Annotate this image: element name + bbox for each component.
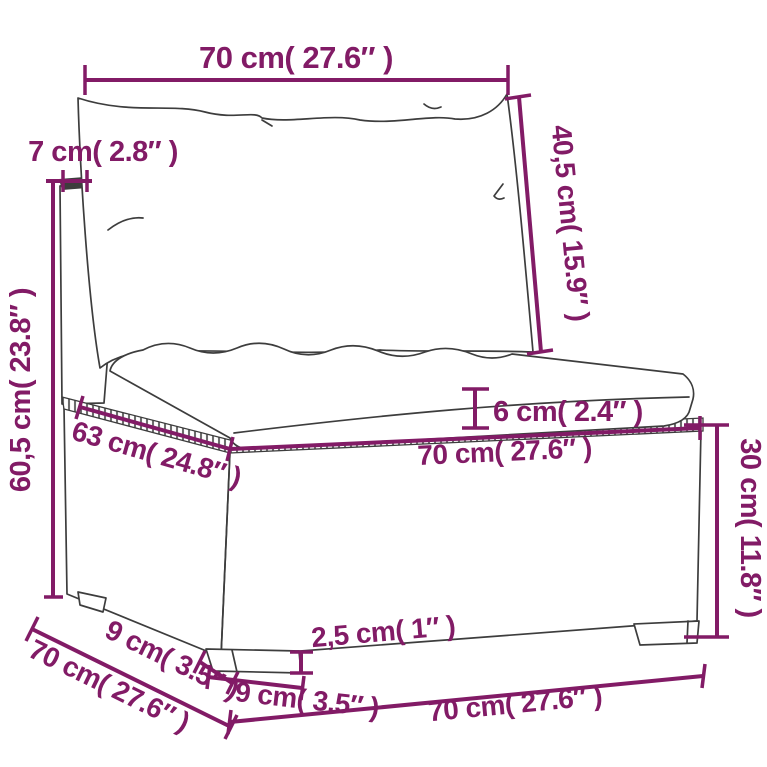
dim-label-base-height: 30 cm( 11.8″ ) xyxy=(734,438,766,617)
dim-foot-height: 2,5 cm( 1″ ) xyxy=(290,610,456,673)
dim-label-back-cushion-width: 70 cm( 27.6″ ) xyxy=(199,40,393,75)
dim-back-cushion-width: 70 cm( 27.6″ ) xyxy=(85,40,508,95)
tick xyxy=(702,664,705,688)
dim-label-back-total-height: 60,5 cm( 23.8″ ) xyxy=(5,288,37,492)
foot-right xyxy=(634,621,699,645)
foot-right-edge xyxy=(687,621,688,643)
tick xyxy=(505,95,531,99)
dim-label-base-width: 70 cm( 27.6″ ) xyxy=(427,680,604,728)
dim-label-back-cushion-height: 40,5 cm( 15.9″ ) xyxy=(546,124,596,323)
dim-label-seat-width: 70 cm( 27.6″ ) xyxy=(417,432,593,471)
dimension-diagram: 70 cm( 27.6″ ) 7 cm( 2.8″ ) 60,5 cm( 23.… xyxy=(0,0,767,767)
dim-base-height: 30 cm( 11.8″ ) xyxy=(684,425,766,637)
dim-label-foot-height: 2,5 cm( 1″ ) xyxy=(310,610,457,653)
dim-label-seat-cushion-thickness: 6 cm( 2.4″ ) xyxy=(493,396,643,428)
dim-label-back-panel-thickness: 7 cm( 2.8″ ) xyxy=(28,136,178,168)
foot-back-left xyxy=(78,592,106,612)
sofa-sketch xyxy=(59,94,703,673)
dim-back-total-height: 60,5 cm( 23.8″ ) xyxy=(5,181,63,597)
back-cushion-fold-top2 xyxy=(424,104,441,108)
sofa-dimension-drawing: 70 cm( 27.6″ ) 7 cm( 2.8″ ) 60,5 cm( 23.… xyxy=(0,0,767,767)
